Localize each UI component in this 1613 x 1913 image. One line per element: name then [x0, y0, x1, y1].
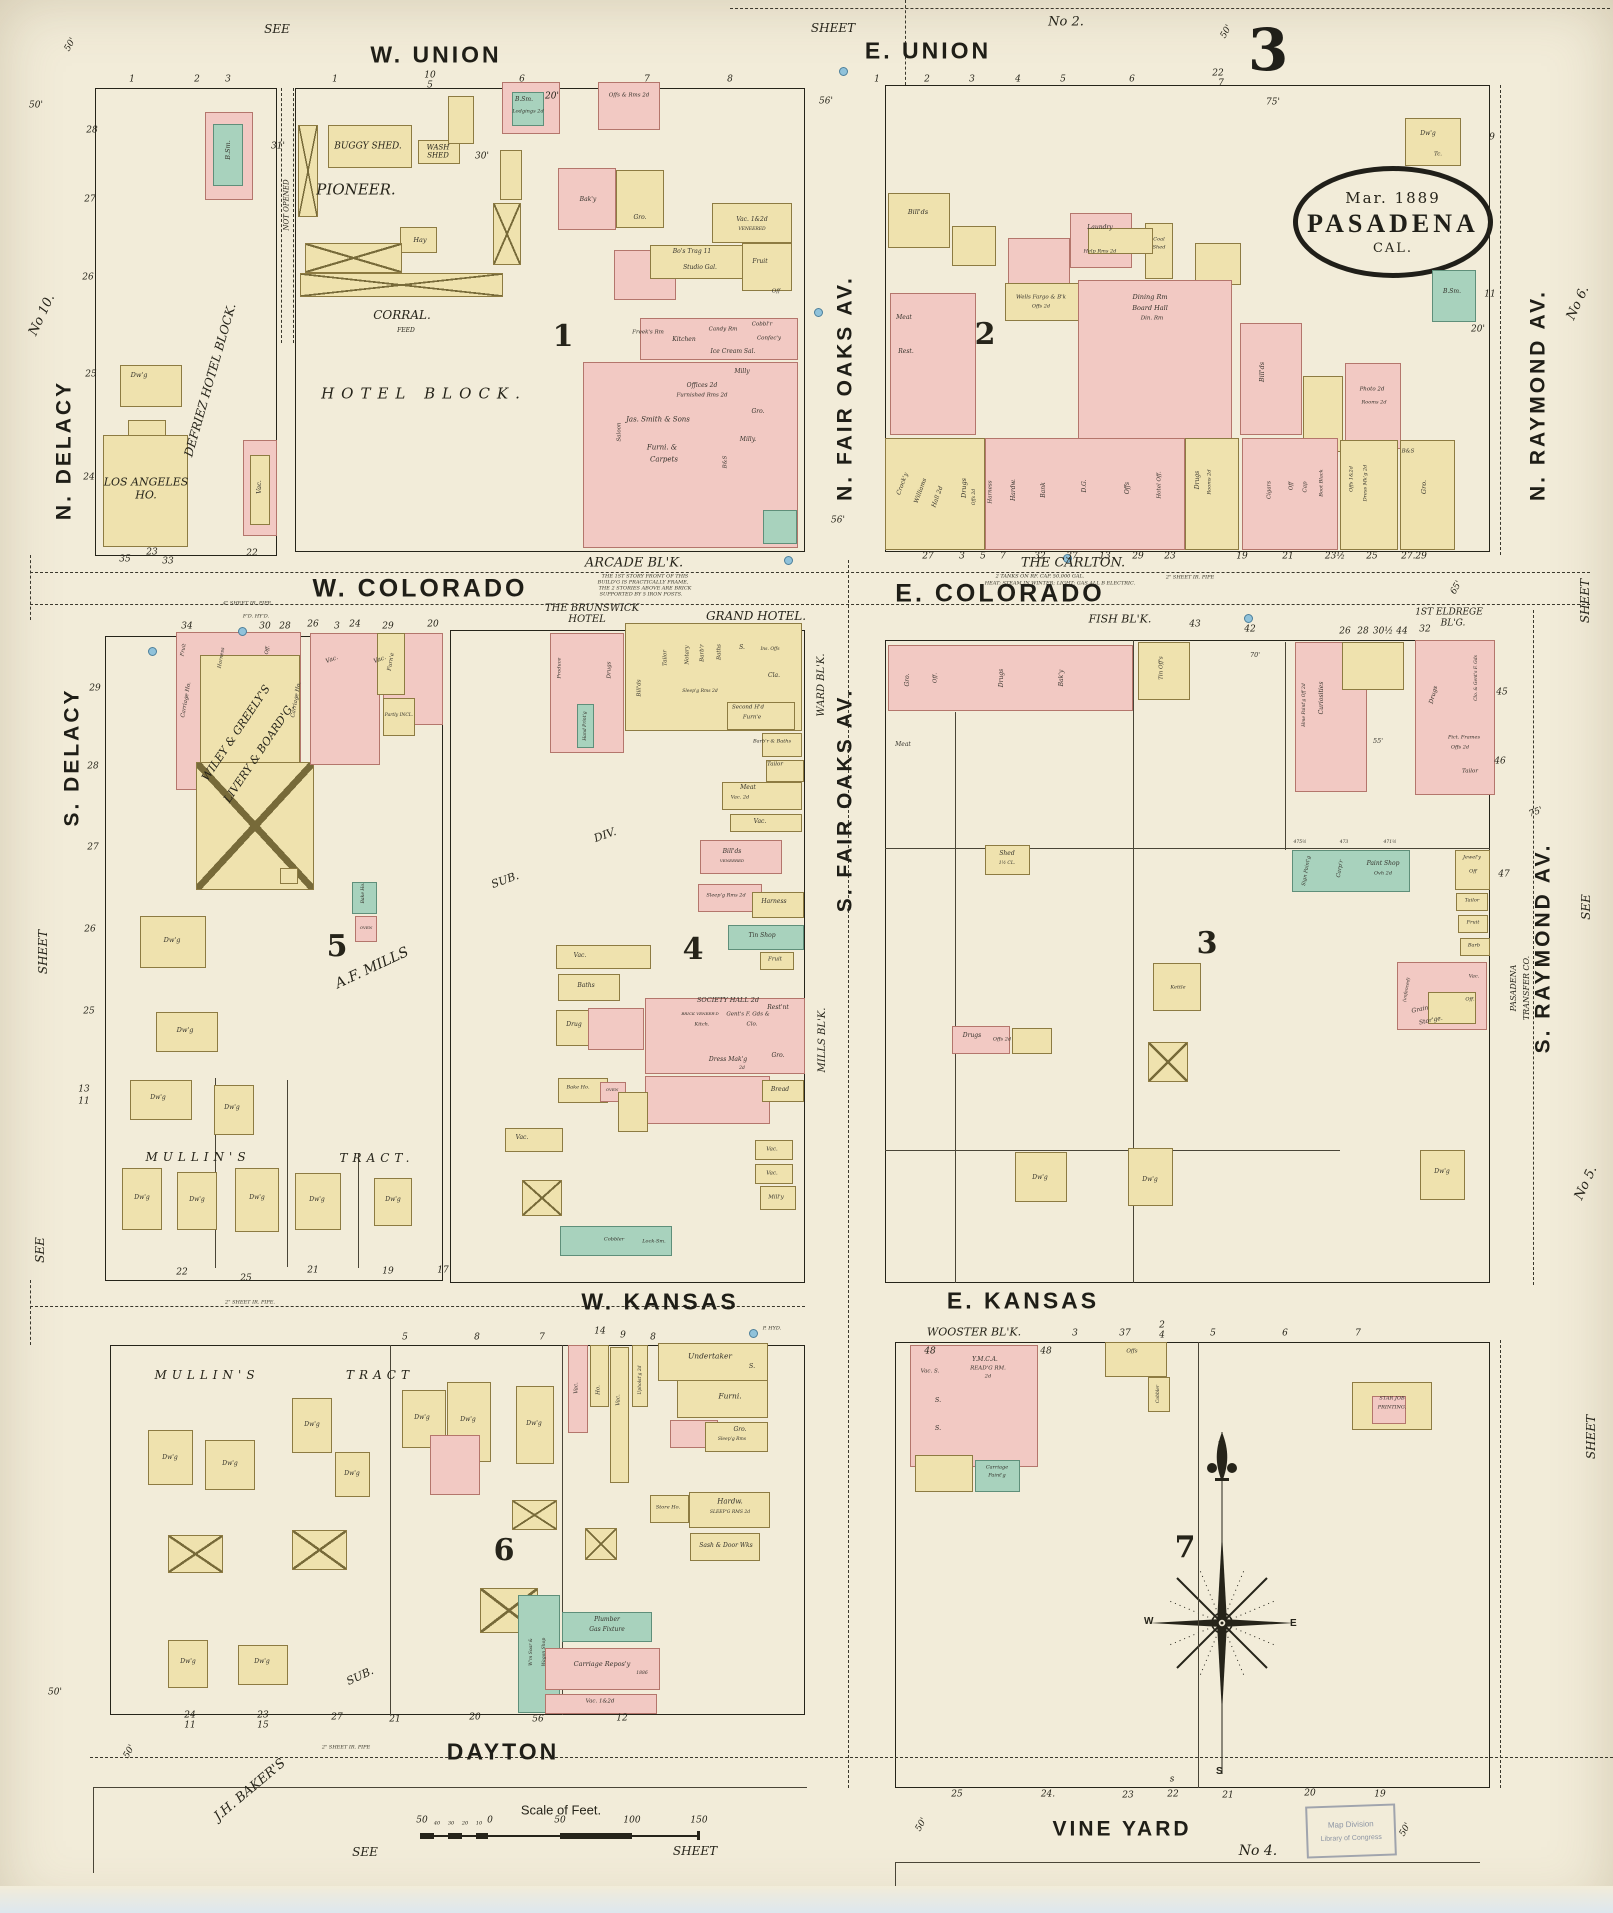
place-name-label: CORRAL. — [373, 309, 431, 321]
building-footprint — [888, 193, 950, 248]
building-use-label: Wagon Shop — [543, 1638, 548, 1666]
building-use-label: Vac. 1&2d — [736, 217, 767, 223]
building-use-label: VENEERED — [720, 859, 744, 863]
building-footprint — [712, 203, 792, 243]
place-name-label: WASH — [427, 145, 450, 152]
lot-number-label: 2 — [194, 76, 200, 85]
building-use-label: Offs & Rms 2d — [609, 93, 650, 99]
building-use-label: Curiosities — [1319, 682, 1325, 715]
building-use-label: Gro. — [633, 215, 646, 221]
building-use-label: 473 — [1340, 841, 1349, 846]
building-footprint — [1105, 1342, 1167, 1377]
lot-line — [390, 1345, 391, 1715]
building-use-label: Coal — [1153, 238, 1164, 243]
place-name-label: MILLS BL'K. — [818, 1008, 828, 1073]
lot-number-label: 24 — [83, 474, 94, 483]
street-name-label: N. RAYMOND AV. — [1528, 289, 1549, 501]
place-name-label: TRACT — [346, 1369, 414, 1381]
building-use-label: Dw'g — [460, 1417, 475, 1423]
building-use-label: Cap — [1303, 481, 1309, 492]
building-use-label: Saloon — [617, 423, 623, 442]
building-use-label: B&S — [1402, 449, 1415, 455]
street-name-label: VINE YARD — [1052, 1819, 1191, 1840]
lot-number-label: 6 — [1129, 76, 1135, 85]
place-name-label: J.H. BAKER'S — [212, 1757, 288, 1824]
scaletick-label: 20 — [462, 1822, 468, 1827]
building-use-label: Offs 2d — [1032, 305, 1050, 310]
building-use-label: Vac. S. — [921, 1369, 940, 1375]
building-use-label: Gro. — [771, 1053, 784, 1059]
building-footprint — [1415, 640, 1495, 795]
building-footprint — [915, 1455, 973, 1492]
building-use-label: Dw'g — [344, 1471, 359, 1477]
building-use-label: Hardw. — [1011, 479, 1017, 501]
lot-number-label: 20 — [469, 1714, 480, 1723]
building-use-label: VENEERED — [738, 228, 765, 233]
building-use-label: B.Sm. — [515, 97, 533, 103]
place-name-label: SHED — [427, 153, 449, 160]
building-use-label: Bak'y — [1059, 670, 1065, 687]
lot-number-label: 8 — [727, 76, 733, 85]
sheet-reference-label: No 10. — [27, 292, 57, 337]
place-name-label: TRANSFER CO. — [1523, 956, 1531, 1020]
street-name-label: S. RAYMOND AV. — [1533, 843, 1554, 1054]
building-use-label: Fruit — [768, 957, 782, 963]
lot-number-label: 37 — [1119, 1330, 1130, 1339]
building-use-label: Dw'g — [385, 1197, 400, 1203]
lot-number-label: 5 — [1210, 1330, 1216, 1339]
lot-number-label: 13 — [78, 1086, 89, 1095]
building-use-label: Drugs — [963, 1033, 981, 1039]
building-footprint — [598, 82, 660, 130]
lot-number-label: 6 — [519, 76, 525, 85]
place-name-label: BUGGY SHED. — [334, 143, 402, 152]
building-footprint — [168, 1535, 223, 1573]
block-number-label: 7 — [1175, 1533, 1196, 1563]
measurement-label: 56' — [819, 98, 833, 107]
lot-number-label: 25 — [240, 1275, 251, 1284]
building-footprint — [1340, 440, 1398, 550]
water-feature-dot — [784, 556, 793, 565]
building-use-label: Offs — [1126, 1349, 1137, 1355]
lot-number-label: 34 — [181, 623, 192, 632]
building-use-label: Wells Fargo & B'k — [1016, 295, 1066, 301]
building-use-label: Off. — [1465, 998, 1474, 1003]
building-use-label: 70' — [1250, 652, 1260, 659]
building-use-label: Tailor — [663, 650, 669, 666]
building-use-label: Shed — [999, 851, 1014, 857]
scaletick-label: 30 — [448, 1822, 454, 1827]
street-name-label: N. FAIR OAKS AV. — [835, 275, 856, 501]
building-use-label: Vac. — [766, 1147, 778, 1153]
lot-number-label: 28 — [279, 623, 290, 632]
building-use-label: Baths — [717, 644, 723, 660]
lot-number-label: 4 — [1159, 1332, 1165, 1341]
building-use-label: Dw'g — [177, 1027, 194, 1034]
sheet-reference-label: SHEET — [673, 1845, 717, 1857]
street-dash-line — [293, 88, 294, 343]
building-use-label: 1½ CL. — [999, 862, 1016, 867]
building-footprint — [505, 1128, 563, 1152]
lot-line — [1285, 642, 1286, 850]
lot-number-label: 21 — [307, 1267, 318, 1276]
measurement-label: 65' — [1450, 580, 1465, 597]
lot-number-label: 26 — [307, 621, 318, 630]
lot-line — [1198, 1342, 1199, 1788]
lot-number-label: 26 — [82, 274, 93, 283]
lot-number-label: 22 — [246, 550, 257, 559]
building-use-label: Dw'g — [414, 1415, 429, 1421]
building-use-label: Ho. — [596, 1385, 602, 1395]
building-use-label: S. — [739, 645, 745, 651]
building-use-label: Drugs — [607, 662, 613, 679]
building-footprint — [493, 203, 521, 265]
building-use-label: Meat — [895, 742, 911, 748]
building-use-label: Sash & Door Wks — [699, 1543, 752, 1549]
street-name-label: N. DELACY — [54, 380, 75, 520]
lot-number-label: 23½ — [1325, 553, 1345, 562]
building-use-label: SLEEP'G RMS 2d — [710, 1511, 750, 1516]
building-use-label: Ovh 2d — [1374, 872, 1392, 877]
building-use-label: Vac. — [574, 1382, 580, 1394]
building-use-label: Drugs — [1195, 471, 1201, 489]
place-name-label: WARD BL'K. — [817, 653, 827, 716]
lot-line — [955, 712, 956, 1283]
map-note-label: 4" SHEET IR. PIPE — [223, 602, 271, 607]
building-use-label: Laundry — [1087, 225, 1112, 231]
lot-number-label: 30½ — [1373, 628, 1393, 637]
building-use-label: Vac. 2d — [731, 796, 750, 801]
building-use-label: Freek's Rm — [632, 330, 664, 336]
building-use-label: Dw'g — [164, 937, 181, 944]
measurement-label: 50' — [48, 1689, 62, 1698]
street-name-label: W. UNION — [370, 44, 501, 67]
lot-number-label: 33 — [162, 558, 173, 567]
building-use-label: Dw'g — [224, 1105, 239, 1111]
water-feature-dot — [749, 1329, 758, 1338]
building-use-label: Hand Print'g — [584, 711, 589, 740]
lot-number-label: 11 — [184, 1722, 195, 1731]
building-use-label: OVEN — [360, 926, 373, 930]
library-stamp: Map Division Library of Congress — [1305, 1803, 1397, 1858]
block-number-label: 3 — [1197, 929, 1218, 959]
sheet-reference-label: SHEET — [37, 930, 49, 974]
lot-number-label: 28 — [1357, 628, 1368, 637]
building-use-label: Bread — [771, 1087, 789, 1093]
building-use-label: Bill'ds — [637, 679, 643, 696]
building-use-label: Drug — [566, 1022, 581, 1028]
street-dash-line — [30, 555, 31, 620]
building-use-label: Dw'g — [1032, 1175, 1047, 1181]
lot-number-label: 21 — [1222, 1792, 1233, 1801]
lot-line — [895, 1862, 1480, 1863]
building-use-label: S. — [935, 1397, 941, 1404]
street-name-label: S. FAIR OAKS AV. — [835, 688, 856, 913]
street-name-label: E. UNION — [865, 40, 991, 63]
lot-number-label: 48 — [1040, 1348, 1051, 1357]
building-use-label: Studio Gal. — [683, 265, 717, 271]
building-use-label: Dress Mk'g 2d — [1364, 465, 1369, 502]
building-footprint — [1420, 1150, 1465, 1200]
building-use-label: Bake Ho. — [566, 1086, 589, 1091]
lot-line — [895, 1862, 896, 1913]
lot-number-label: 3 — [959, 553, 965, 562]
building-use-label: Rest'nt — [767, 1005, 788, 1011]
building-use-label: Cla. — [768, 673, 780, 679]
lot-number-label: 7 — [1000, 553, 1006, 562]
building-footprint — [430, 1435, 480, 1495]
lot-number-label: 2 — [924, 76, 930, 85]
building-use-label: Ice Cream Sal. — [711, 349, 756, 355]
sheet-reference-label: SHEET — [811, 22, 855, 34]
building-use-label: Produce — [558, 658, 563, 679]
lot-number-label: 7 — [1355, 1330, 1361, 1339]
lot-number-label: 42 — [1244, 626, 1255, 635]
building-use-label: Off — [1469, 870, 1477, 875]
building-use-label: Confec'y — [757, 336, 781, 342]
building-use-label: Jas. Smith & Sons — [626, 417, 690, 424]
place-name-label: GRAND HOTEL. — [706, 610, 806, 622]
building-use-label: Dw'g — [189, 1197, 204, 1203]
place-name-label: HOTEL BLOCK. — [321, 387, 527, 402]
measurement-label: 50' — [915, 1817, 930, 1834]
map-note-label: HEAT: STEAM IN WINTER; LIGHT: GAS ALL B … — [985, 582, 1136, 587]
lot-number-label: 20 — [427, 621, 438, 630]
lot-number-label: 28 — [87, 763, 98, 772]
lot-number-label: 28 — [86, 127, 97, 136]
building-use-label: Cigars — [1267, 481, 1273, 499]
lot-number-label: 7 — [539, 1334, 545, 1343]
building-footprint — [500, 150, 522, 200]
place-name-label: FISH BL'K. — [1089, 614, 1152, 625]
lot-number-label: 27 — [331, 1714, 342, 1723]
measurement-label: 30' — [475, 153, 489, 162]
lot-number-label: 4 — [1015, 76, 1021, 85]
building-use-label: Dining Rm — [1132, 294, 1167, 301]
lot-number-label: 7 — [1218, 80, 1224, 89]
building-use-label: Vac. 1&2d — [586, 1699, 615, 1705]
building-footprint — [292, 1530, 347, 1570]
building-footprint — [742, 243, 792, 291]
building-use-label: Off. — [933, 673, 939, 683]
building-use-label: Dw'g — [304, 1422, 319, 1428]
lot-line — [93, 1787, 94, 1873]
building-use-label: Tailor — [767, 762, 783, 768]
building-use-label: Dress Mak'g — [709, 1057, 747, 1063]
water-feature-dot — [1244, 614, 1253, 623]
building-use-label: Notary — [685, 645, 691, 664]
place-name-label: WOOSTER BL'K. — [927, 1327, 1021, 1338]
building-footprint — [1405, 118, 1461, 166]
building-use-label: Barb'r — [700, 644, 706, 662]
building-footprint — [1432, 270, 1476, 322]
sheet-reference-label: No 6. — [1565, 284, 1592, 322]
lot-number-label: 25 — [83, 1008, 94, 1017]
building-use-label: B&S — [723, 456, 729, 469]
measurement-label: 50' — [1399, 1822, 1414, 1839]
building-use-label: Paint'g — [988, 1474, 1006, 1479]
place-name-label: HO. — [135, 490, 156, 501]
map-note-label: P. HYD. — [763, 1327, 782, 1332]
building-use-label: Vac. — [256, 480, 263, 494]
building-use-label: Sleep'g Rms — [718, 1438, 746, 1443]
lot-number-label: 35 — [119, 556, 130, 565]
building-use-label: Ins. Offs — [760, 648, 779, 653]
building-use-label: Store Ho. — [656, 1506, 680, 1511]
lot-line — [885, 1150, 1340, 1151]
lot-number-label: 26 — [84, 926, 95, 935]
lot-number-label: 30 — [259, 623, 270, 632]
measurement-label: 56' — [831, 517, 845, 526]
building-use-label: Gas Fixture — [589, 1627, 625, 1633]
building-use-label: Rooms 2d — [1361, 401, 1386, 406]
lot-number-label: 25 — [85, 371, 96, 380]
measurement-label: 20' — [1471, 326, 1485, 335]
lot-number-label: 6 — [1282, 1330, 1288, 1339]
lot-number-label: 43 — [1189, 621, 1200, 630]
building-use-label: Meat — [896, 315, 912, 321]
building-use-label: Bank — [1041, 482, 1047, 498]
building-use-label: Furn'e — [743, 715, 761, 721]
lot-number-label: 22 — [1212, 70, 1223, 79]
building-use-label: Off — [772, 289, 780, 295]
building-use-label: Vac. — [1469, 975, 1480, 980]
place-name-label: 1ST ELDREGE — [1415, 609, 1483, 618]
scaletick-label: 0 — [487, 1817, 493, 1826]
building-use-label: Drugs — [999, 669, 1005, 687]
building-use-label: Hme Paint'g Off 2d — [1303, 683, 1308, 727]
lot-number-label: 27 — [922, 553, 933, 562]
lot-number-label: 27 — [87, 844, 98, 853]
lot-number-label: 9 — [1489, 134, 1495, 143]
building-use-label: READ'G RM. — [970, 1366, 1006, 1372]
building-use-label: Help Rms 2d — [1084, 250, 1117, 255]
place-name-label: THE BRUNSWICK — [545, 604, 639, 614]
building-use-label: Tailor — [1465, 899, 1480, 904]
scaletick-label: 50 — [416, 1817, 427, 1826]
lot-number-label: 45 — [1496, 689, 1507, 698]
lot-line — [93, 1787, 807, 1788]
building-use-label: W'm Soar & — [530, 1638, 535, 1666]
lot-number-label: 8 — [474, 1334, 480, 1343]
measurement-label: 75' — [1528, 806, 1544, 819]
place-name-label: BL'G. — [1441, 620, 1466, 629]
building-use-label: Paint Shop — [1367, 861, 1400, 867]
block-number-label: 5 — [327, 932, 348, 962]
water-feature-dot — [148, 647, 157, 656]
building-use-label: Kettle — [1170, 986, 1185, 991]
building-use-label: Cobbl'r — [752, 322, 772, 328]
building-footprint — [310, 633, 380, 765]
building-use-label: Gro. — [733, 1427, 746, 1433]
sheet-reference-label: SEE — [352, 1846, 378, 1858]
building-use-label: Tin Shop — [748, 933, 775, 939]
building-use-label: Vac. — [574, 953, 587, 959]
building-use-label: OVEN — [606, 1088, 619, 1092]
lot-number-label: 44 — [1396, 628, 1407, 637]
building-use-label: Dw'g — [1434, 1169, 1449, 1175]
building-use-label: Hardw. — [717, 1499, 743, 1506]
lot-number-label: 3 — [334, 623, 340, 632]
lot-number-label: 20 — [1304, 1790, 1315, 1799]
building-use-label: Clo. & Gent's F. Gds — [1475, 655, 1480, 701]
building-use-label: Cobbler — [604, 1238, 624, 1243]
building-use-label: Dw'g — [249, 1195, 264, 1201]
lot-number-label: 21 — [1282, 553, 1293, 562]
lot-number-label: 1 — [874, 76, 880, 85]
building-use-label: Pict. Frames — [1448, 736, 1480, 741]
building-use-label: Lock-Sm. — [642, 1240, 666, 1245]
building-use-label: Dw'g — [134, 1195, 149, 1201]
lot-number-label: 22 — [1167, 1791, 1178, 1800]
building-footprint — [952, 226, 996, 266]
lot-number-label: 32 — [1034, 553, 1045, 562]
lot-line — [358, 1153, 359, 1268]
lot-number-label: 24 — [184, 1712, 195, 1721]
building-use-label: Sleep'g Rms 2d — [682, 690, 717, 695]
building-footprint — [280, 868, 298, 884]
lot-number-label: 19 — [382, 1268, 393, 1277]
building-use-label: Kitchen — [672, 337, 695, 343]
place-name-label: FEED — [397, 328, 415, 334]
street-dash-line — [730, 8, 1610, 9]
building-use-label: Gro. — [1421, 480, 1428, 494]
lot-number-label: 15 — [257, 1722, 268, 1731]
building-footprint — [545, 1648, 660, 1690]
building-use-label: Boot Black — [1320, 469, 1325, 496]
building-use-label: 2d — [739, 1067, 745, 1072]
lot-number-label: 5 — [1060, 76, 1066, 85]
street-name-label: S. DELACY — [62, 687, 83, 826]
street-dash-line — [90, 1757, 1613, 1758]
building-use-label: Off — [1289, 482, 1295, 490]
building-footprint — [298, 125, 318, 217]
lot-number-label: 7 — [644, 76, 650, 85]
lot-number-label: 9 — [620, 1332, 626, 1341]
building-use-label: Partly INCL. — [385, 714, 413, 719]
place-name-label: ARCADE BL'K. — [585, 557, 683, 570]
place-name-label: MULLIN'S — [145, 1151, 250, 1163]
lot-number-label: 24 — [349, 621, 360, 630]
building-use-label: Dw'g — [162, 1455, 177, 1461]
lot-number-label: 46 — [1494, 758, 1505, 767]
stamp-line1: Map Division — [1328, 1819, 1374, 1830]
building-use-label: Dw'g — [180, 1659, 195, 1665]
measurement-label: 50' — [1220, 24, 1235, 41]
building-footprint — [618, 1092, 648, 1132]
building-use-label: STAR JOB — [1379, 1397, 1404, 1402]
lot-number-label: 3 — [225, 76, 231, 85]
building-use-label: Furni. & — [647, 445, 677, 452]
building-use-label: Hotel Off. — [1157, 471, 1163, 498]
lot-number-label: 23 — [257, 1712, 268, 1721]
building-use-label: Dw'g — [1142, 1177, 1157, 1183]
scaletick-label: 150 — [690, 1817, 707, 1826]
building-footprint — [910, 1345, 1038, 1467]
building-use-label: S. — [749, 1363, 755, 1370]
lot-number-label: 26 — [1339, 628, 1350, 637]
building-use-label: Carriage — [986, 1466, 1008, 1471]
water-feature-dot — [238, 627, 247, 636]
lot-number-label: 13 — [1099, 553, 1110, 562]
building-use-label: Dw'g — [222, 1461, 237, 1467]
water-feature-dot — [839, 67, 848, 76]
sheet-reference-label: No 5. — [1573, 1164, 1600, 1202]
lot-number-label: 5 — [402, 1334, 408, 1343]
street-name-label: W. KANSAS — [581, 1291, 738, 1314]
sheet-reference-label: No 2. — [1048, 16, 1084, 29]
building-use-label: S. — [935, 1425, 941, 1432]
